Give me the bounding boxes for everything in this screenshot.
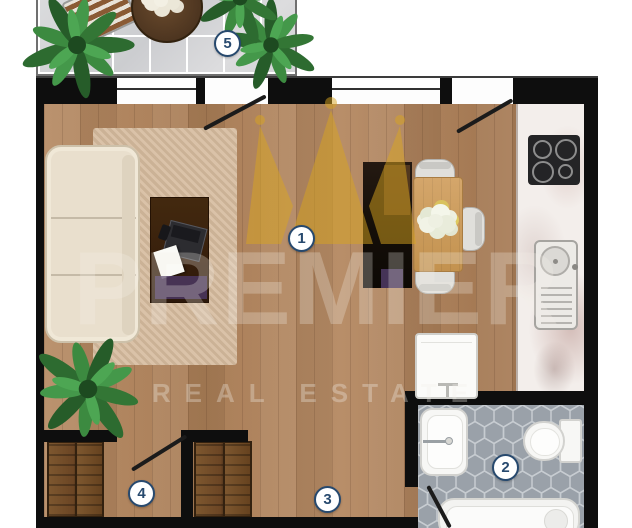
- room-label-bathroom: 2: [492, 454, 519, 481]
- brand-crown-logo: [0, 0, 632, 528]
- room-label-balcony: 5: [214, 30, 241, 57]
- room-label-living-room: 1: [288, 225, 315, 252]
- room-label-hallway: 3: [314, 486, 341, 513]
- floor-plan: PREMIER REAL ESTATE 1 2 3 4 5: [0, 0, 632, 528]
- room-label-wardrobe: 4: [128, 480, 155, 507]
